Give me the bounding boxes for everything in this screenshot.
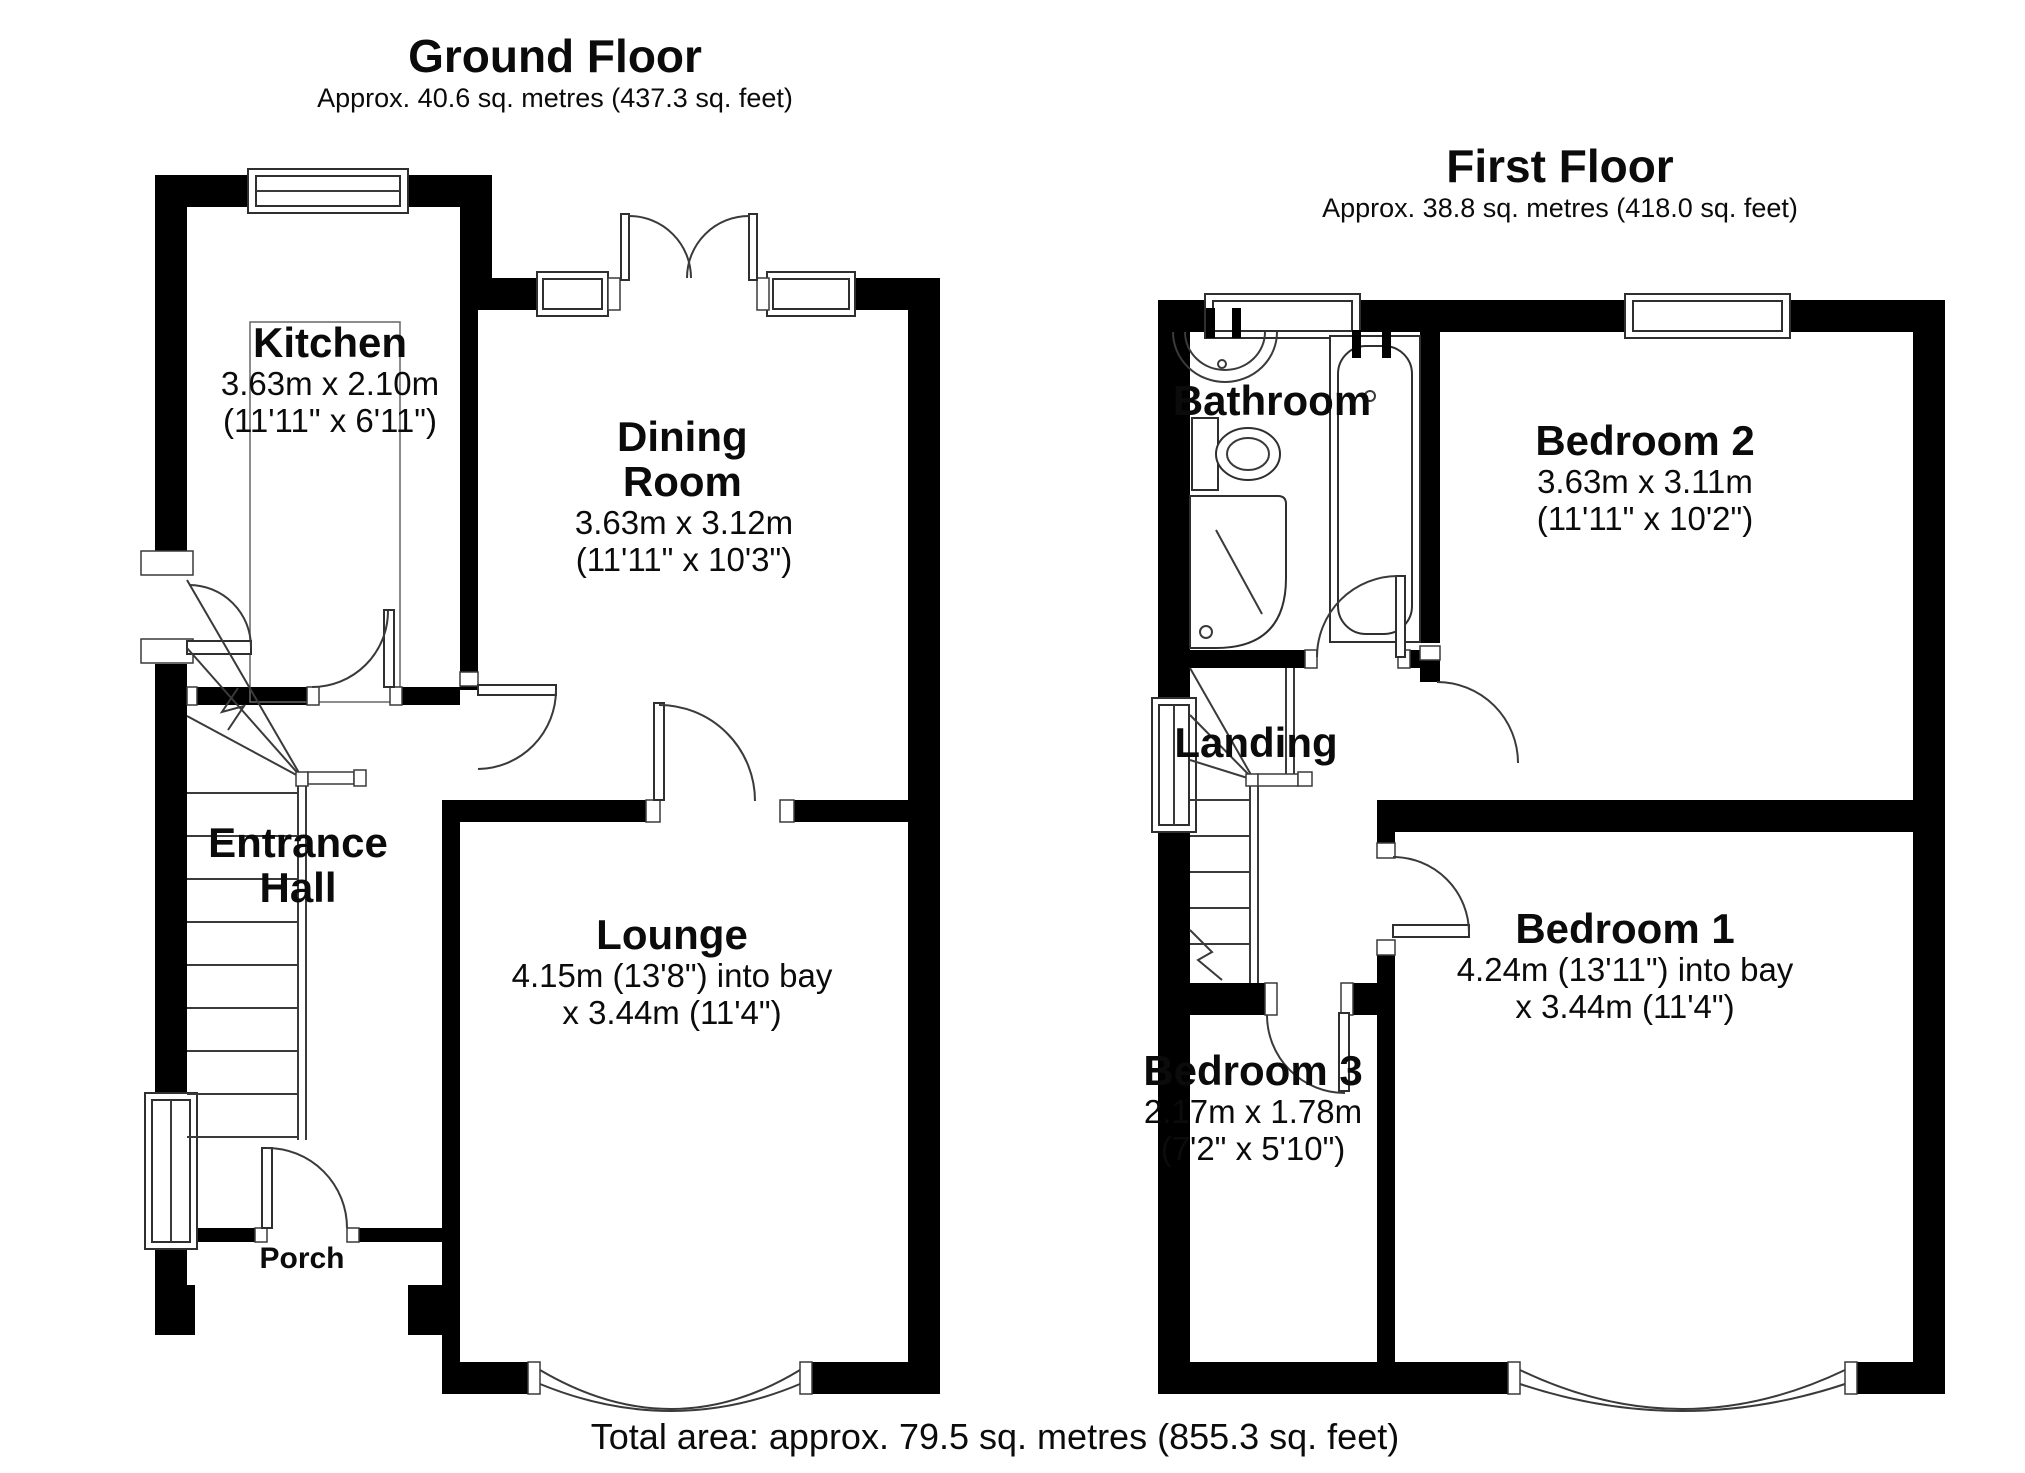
ground-floor-subtitle: Approx. 40.6 sq. metres (437.3 sq. feet) — [317, 82, 793, 114]
shower — [1190, 496, 1286, 648]
first-floor-subtitle: Approx. 38.8 sq. metres (418.0 sq. feet) — [1322, 192, 1798, 224]
front-door — [255, 1148, 359, 1242]
room-label-bedroom3: Bedroom 3 2.17m x 1.78m (7'2" x 5'10") — [1143, 1048, 1362, 1167]
room-label-bathroom: Bathroom — [1173, 378, 1371, 423]
room-label-entrance-hall: Entrance Hall — [191, 820, 406, 910]
ff-bay-window — [1508, 1362, 1857, 1411]
first-floor-title-text: First Floor — [1322, 140, 1798, 192]
bathroom-window — [1205, 294, 1360, 338]
gf-bay-window — [528, 1362, 812, 1411]
kitchen-window — [248, 169, 408, 213]
room-label-lounge: Lounge 4.15m (13'8") into bay x 3.44m (1… — [512, 912, 833, 1031]
first-floor-title: First Floor Approx. 38.8 sq. metres (418… — [1322, 140, 1798, 224]
dining-door — [460, 672, 556, 769]
dining-window-right — [767, 272, 855, 316]
hall-window — [145, 1093, 197, 1249]
room-label-dining-room: Dining Room 3.63m x 3.12m (11'11" x 10'3… — [575, 414, 793, 578]
lounge-door — [646, 703, 794, 822]
bedroom1-door — [1377, 843, 1469, 955]
ground-floor-title-text: Ground Floor — [317, 30, 793, 82]
french-doors — [608, 214, 769, 312]
dining-window-left — [537, 272, 608, 316]
bedroom2-window — [1625, 294, 1790, 338]
ground-floor-title: Ground Floor Approx. 40.6 sq. metres (43… — [317, 30, 793, 114]
room-label-porch: Porch — [259, 1243, 344, 1275]
total-area-text: Total area: approx. 79.5 sq. metres (855… — [591, 1416, 1399, 1458]
room-label-landing: Landing — [1174, 720, 1337, 765]
toilet — [1192, 418, 1280, 490]
ff-staircase — [1190, 668, 1312, 983]
room-label-bedroom2: Bedroom 2 3.63m x 3.11m (11'11" x 10'2") — [1535, 418, 1754, 537]
floorplan-page: Ground Floor Approx. 40.6 sq. metres (43… — [0, 0, 2025, 1473]
room-label-kitchen: Kitchen 3.63m x 2.10m (11'11" x 6'11") — [221, 320, 439, 439]
room-label-bedroom1: Bedroom 1 4.24m (13'11") into bay x 3.44… — [1457, 906, 1794, 1025]
